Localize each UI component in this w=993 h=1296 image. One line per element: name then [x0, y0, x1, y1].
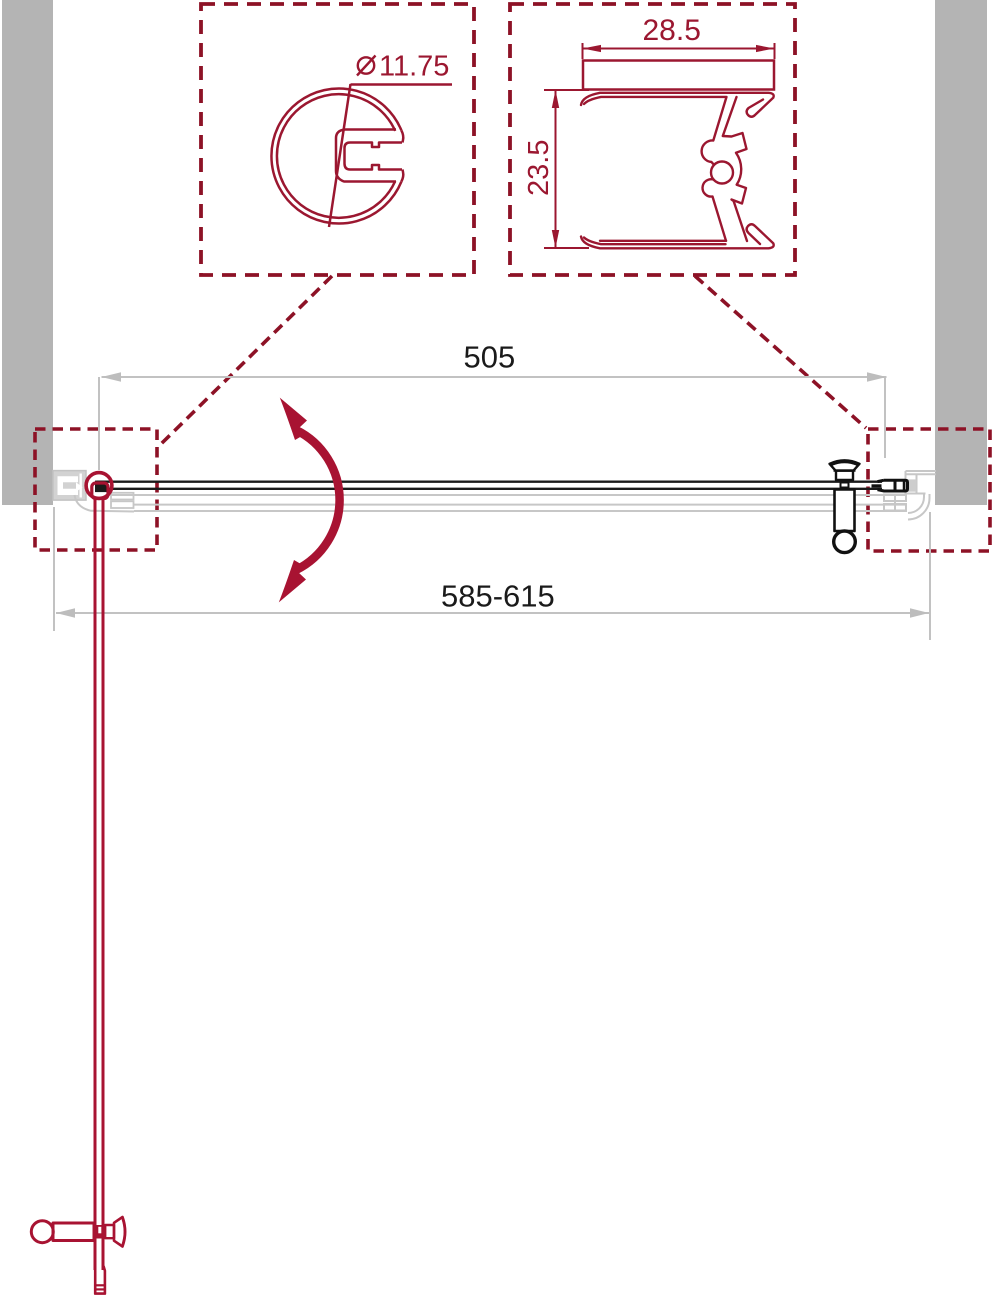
svg-text:585-615: 585-615 [441, 579, 555, 614]
svg-text:11.75: 11.75 [379, 51, 449, 83]
svg-text:505: 505 [464, 340, 516, 375]
svg-text:28.5: 28.5 [643, 14, 701, 47]
svg-text:23.5: 23.5 [523, 140, 555, 196]
